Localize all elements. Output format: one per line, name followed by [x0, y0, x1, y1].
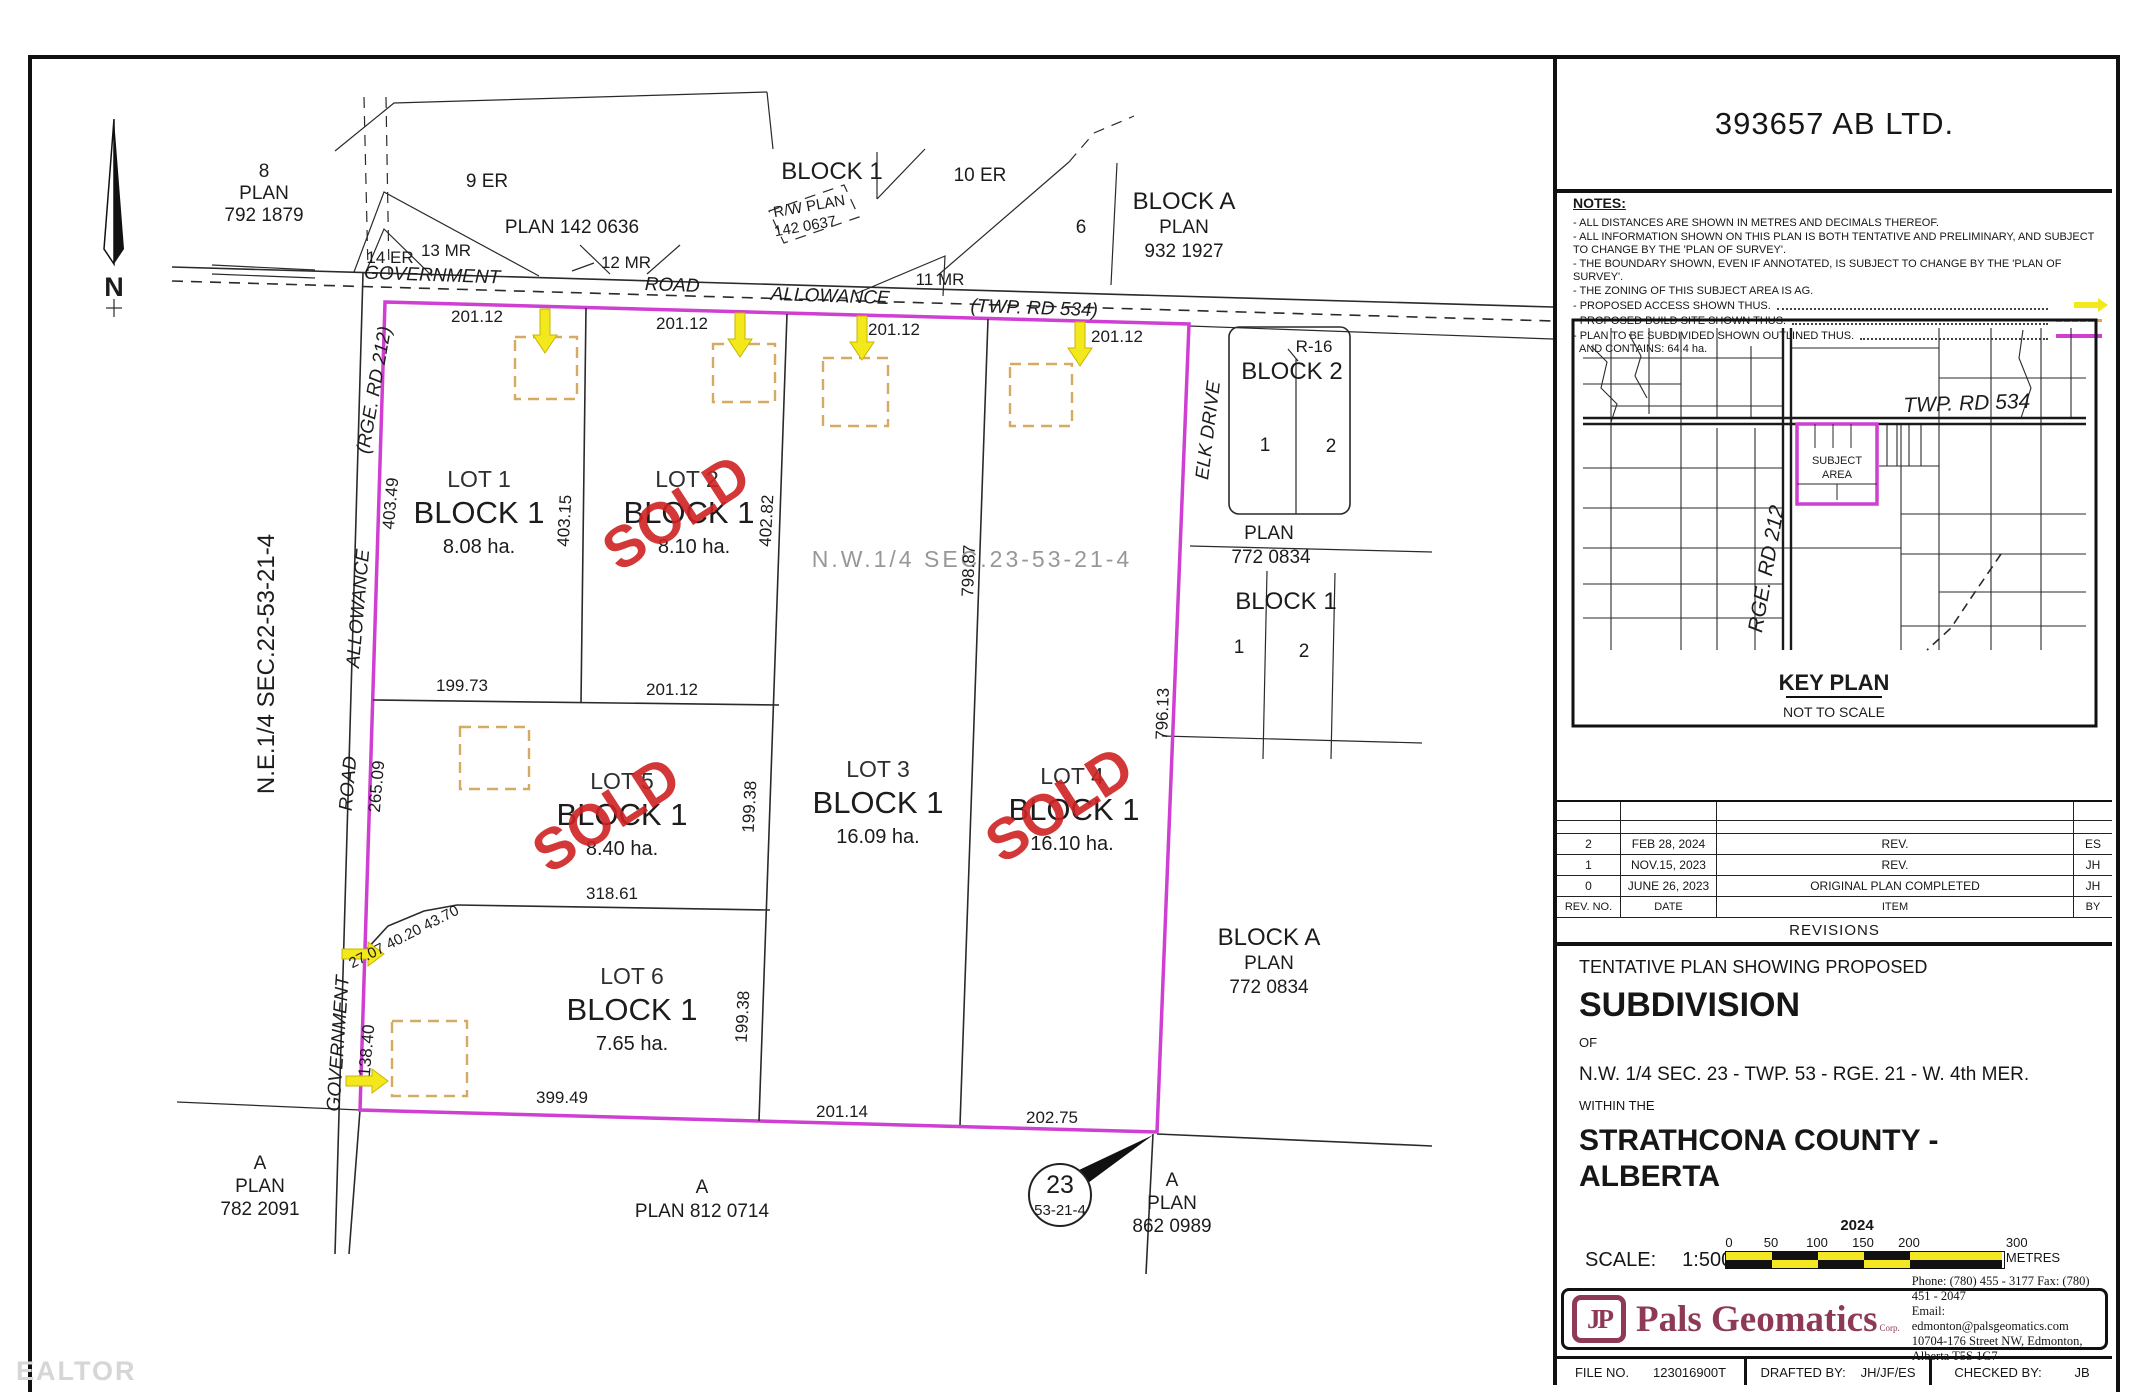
road-label: GOVERNMENT: [323, 974, 354, 1113]
pals-geomatics-logo-icon: JP: [1572, 1295, 1626, 1343]
context-label: PLAN: [1244, 953, 1294, 974]
scale-label: SCALE:1:5000: [1585, 1249, 1743, 1272]
plan-title-block: TENTATIVE PLAN SHOWING PROPOSED SUBDIVIS…: [1579, 943, 2100, 1195]
context-label: 9 ER: [466, 171, 508, 192]
lot-area: 7.65 ha.: [596, 1033, 668, 1055]
context-label: 772 0834: [1231, 547, 1311, 568]
subject-area-label: AREA: [1822, 469, 1853, 481]
file-info-bar: FILE NO.123016900T DRAFTED BY:JH/JF/ES C…: [1557, 1356, 2112, 1385]
note-item: - ALL INFORMATION SHOWN ON THIS PLAN IS …: [1573, 231, 2102, 258]
subject-area-label: SUBJECT: [1812, 455, 1862, 467]
revision-row: 0JUNE 26, 2023 ORIGINAL PLAN COMPLETEDJH: [1557, 876, 2112, 897]
key-plan: SUBJECT AREA TWP. RD 534 RGE. RD 212 KEY…: [1569, 318, 2100, 728]
section-marker: 23 53-21-4: [1029, 1135, 1153, 1226]
revisions-title: REVISIONS: [1557, 918, 2112, 942]
context-label: 11 MR: [916, 270, 965, 289]
context-label: 932 1927: [1144, 241, 1223, 262]
dim-label: 201.12: [656, 314, 708, 333]
dim-label: 199.38: [732, 990, 754, 1043]
scale-bar: 0 50 100 150 200 300 METRES: [1725, 1235, 2025, 1269]
context-label: A: [1166, 1170, 1179, 1191]
context-label: PLAN 142 0636: [505, 217, 639, 238]
dim-label: 199.73: [436, 676, 488, 695]
company-email: Email: edmonton@palsgeomatics.com: [1912, 1304, 2097, 1334]
dim-label: 402.82: [756, 494, 778, 547]
company-name: Pals GeomaticsCorp.: [1636, 1298, 1900, 1341]
context-label: 14 ER: [366, 248, 413, 267]
dim-label: 199.38: [739, 780, 761, 833]
plan-year: 2024: [1840, 1217, 1873, 1234]
context-label: PLAN 812 0714: [635, 1201, 770, 1222]
access-arrow-legend-icon: [2054, 298, 2102, 312]
context-label: A: [254, 1153, 267, 1174]
context-label: 10 ER: [954, 165, 1007, 186]
context-label: 782 2091: [220, 1199, 299, 1220]
key-plan-subtitle: NOT TO SCALE: [1783, 704, 1885, 720]
sheet-border: N GOVERNMENT ROAD ALLOWANCE (TWP. RD 534…: [28, 55, 2120, 1392]
lot-block: BLOCK 1: [567, 992, 698, 1027]
context-label: A: [696, 1177, 709, 1198]
road-label: ALLOWANCE: [343, 548, 374, 670]
lot-block: BLOCK 1: [414, 495, 545, 530]
context-label: PLAN: [1147, 1193, 1197, 1214]
road-label: ROAD: [336, 755, 362, 812]
dim-label: 201.12: [646, 680, 698, 699]
context-label: 1: [1234, 637, 1245, 658]
dim-label: 403.49: [379, 477, 402, 530]
note-item: - THE ZONING OF THIS SUBJECT AREA IS AG.: [1573, 285, 2102, 299]
context-label: 2: [1326, 436, 1337, 457]
company-title: 393657 AB LTD.: [1557, 59, 2112, 193]
dim-label: 399.49: [536, 1088, 588, 1107]
road-label: ELK DRIVE: [1192, 379, 1225, 480]
dimension-labels: 201.12 201.12 201.12 201.12 403.49 265.0…: [346, 307, 1173, 1127]
quarter-label: N.E.1/4 SEC.22-53-21-4: [253, 534, 280, 794]
context-label: PLAN: [239, 183, 289, 204]
dim-label: 265.09: [365, 760, 388, 813]
survey-plan-sheet: N GOVERNMENT ROAD ALLOWANCE (TWP. RD 534…: [0, 0, 2140, 1392]
company-contact: Phone: (780) 455 - 3177 Fax: (780) 451 -…: [1912, 1274, 2097, 1364]
notes-heading: NOTES:: [1573, 195, 2102, 211]
dim-label: 202.75: [1026, 1108, 1078, 1127]
company-phone: Phone: (780) 455 - 3177 Fax: (780) 451 -…: [1912, 1274, 2097, 1304]
context-label: 13 MR: [421, 241, 471, 260]
title-line: STRATHCONA COUNTY - ALBERTA: [1579, 1123, 2059, 1195]
context-label: 2: [1299, 641, 1310, 662]
context-label: BLOCK 1: [781, 158, 882, 185]
dim-label: 201.14: [816, 1102, 868, 1121]
title-block-panel: 393657 AB LTD. NOTES: - ALL DISTANCES AR…: [1553, 59, 2112, 1385]
revisions-table: 2FEB 28, 2024 REV.ES 1NOV.15, 2023 REV.J…: [1557, 800, 2112, 946]
plan-drawing-area: N GOVERNMENT ROAD ALLOWANCE (TWP. RD 534…: [32, 59, 1553, 1385]
scale-bar-graphic: [1725, 1251, 2005, 1269]
context-label: BLOCK A: [1218, 924, 1321, 951]
context-label: 792 1879: [224, 205, 303, 226]
dim-label: 403.15: [554, 494, 576, 547]
watermark: EALTOR: [16, 1356, 137, 1387]
context-label: 772 0834: [1229, 977, 1309, 998]
context-label: 862 0989: [1132, 1216, 1211, 1237]
key-plan-twp-label: TWP. RD 534: [1903, 390, 2031, 417]
key-plan-map: SUBJECT AREA TWP. RD 534 RGE. RD 212 KEY…: [1569, 318, 2100, 728]
checked-by-cell: CHECKED BY:JB: [1932, 1359, 2112, 1385]
key-plan-grid: [1583, 328, 2086, 650]
dim-label: 138.40: [355, 1024, 378, 1077]
file-no-cell: FILE NO.123016900T: [1557, 1359, 1747, 1385]
section-number: 23: [1046, 1171, 1074, 1199]
note-item: - PROPOSED ACCESS SHOWN THUS.: [1573, 298, 2102, 313]
revision-row-empty: [1557, 821, 2112, 834]
lot-area: 16.09 ha.: [836, 826, 919, 848]
plan-drawing: N GOVERNMENT ROAD ALLOWANCE (TWP. RD 534…: [32, 59, 1553, 1385]
lot-name: LOT 3: [846, 756, 910, 782]
north-arrow: N: [104, 119, 124, 317]
scale-ticks: 0 50 100 150 200 300 METRES: [1725, 1235, 2025, 1251]
context-label: BLOCK 2: [1241, 358, 1342, 385]
lot-block: BLOCK 1: [813, 785, 944, 820]
note-item: - ALL DISTANCES ARE SHOWN IN METRES AND …: [1573, 217, 2102, 231]
context-label: 6: [1076, 217, 1087, 238]
section-township: 53-21-4: [1034, 1202, 1086, 1219]
title-line: SUBDIVISION: [1579, 986, 2100, 1025]
road-label: ROAD: [644, 274, 700, 297]
context-label: PLAN: [1244, 523, 1294, 544]
context-label: PLAN: [235, 1176, 285, 1197]
title-line: TENTATIVE PLAN SHOWING PROPOSED: [1579, 957, 2100, 978]
dim-label: 798.87: [958, 544, 979, 597]
context-label: 1: [1260, 435, 1271, 456]
lot-name: LOT 1: [447, 466, 511, 492]
key-plan-roads: [1583, 328, 2086, 650]
dim-label: 201.12: [451, 307, 503, 326]
dim-label: 318.61: [586, 884, 638, 903]
context-label: R-16: [1296, 337, 1333, 356]
context-label: 8: [259, 161, 270, 182]
dim-label: 201.12: [868, 320, 920, 339]
north-label: N: [104, 272, 124, 302]
context-label: PLAN: [1159, 217, 1209, 238]
dim-label: 201.12: [1091, 327, 1143, 346]
drafted-by-cell: DRAFTED BY:JH/JF/ES: [1747, 1359, 1932, 1385]
context-label: BLOCK 1: [1235, 588, 1336, 615]
title-line: N.W. 1/4 SEC. 23 - TWP. 53 - RGE. 21 - W…: [1579, 1064, 2100, 1086]
road-label: ALLOWANCE: [769, 284, 890, 309]
key-plan-title: KEY PLAN: [1779, 670, 1890, 695]
lot-name: LOT 6: [600, 963, 664, 989]
revisions-header-row: REV. NO.DATE ITEMBY: [1557, 897, 2112, 918]
revision-row: 1NOV.15, 2023 REV.JH: [1557, 855, 2112, 876]
company-bar: JP Pals GeomaticsCorp. Phone: (780) 455 …: [1561, 1288, 2108, 1350]
title-line: OF: [1579, 1035, 2100, 1050]
lot-area: 8.08 ha.: [443, 536, 515, 558]
context-label: 12 MR: [601, 253, 651, 272]
dotted-leader: [1777, 308, 2048, 310]
dim-label: 27.07 40.20 43.70: [346, 902, 461, 972]
context-label: BLOCK A: [1133, 188, 1236, 215]
revision-row: 2FEB 28, 2024 REV.ES: [1557, 834, 2112, 855]
title-line: WITHIN THE: [1579, 1098, 2100, 1113]
revision-row-empty: [1557, 802, 2112, 821]
dim-label: 796.13: [1152, 687, 1173, 740]
company-corp: Corp.: [1879, 1323, 1899, 1333]
note-item: - THE BOUNDARY SHOWN, EVEN IF ANNOTATED,…: [1573, 258, 2102, 285]
road-label: (TWP. RD 534): [970, 296, 1098, 321]
